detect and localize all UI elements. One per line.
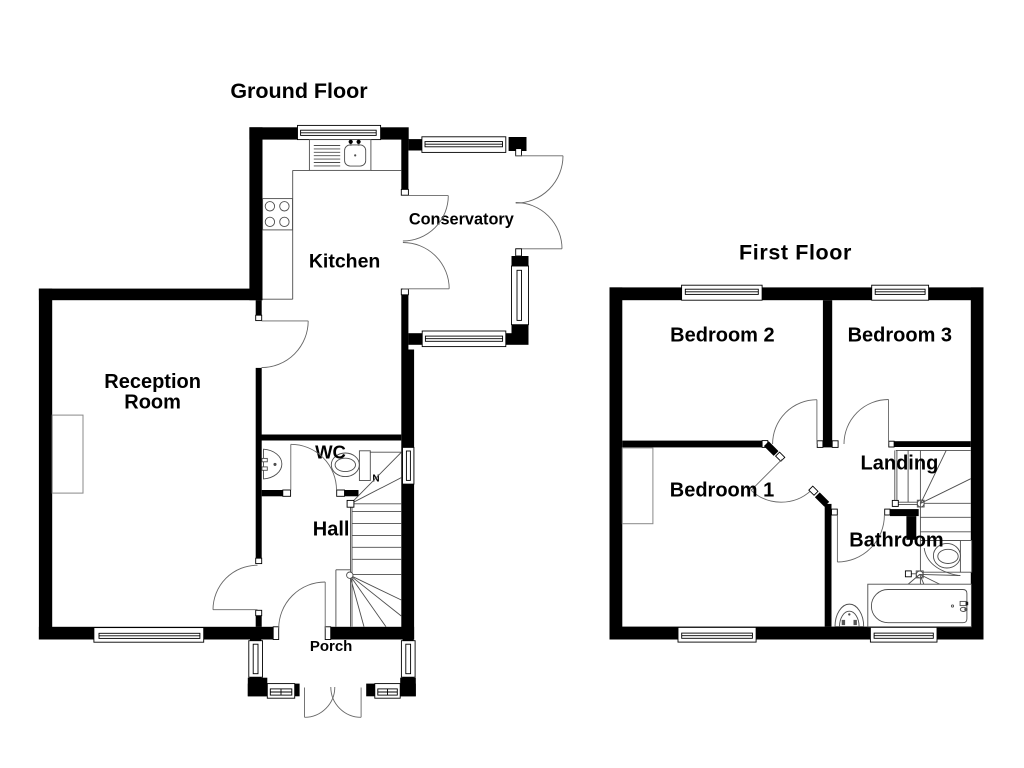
svg-text:Bedroom 1: Bedroom 1: [670, 479, 774, 501]
svg-text:Porch: Porch: [310, 638, 353, 655]
svg-text:First Floor: First Floor: [739, 241, 852, 265]
svg-text:Hall: Hall: [313, 518, 350, 540]
svg-text:Bedroom 2: Bedroom 2: [670, 325, 774, 347]
svg-text:Room: Room: [124, 392, 181, 414]
svg-text:Reception: Reception: [104, 371, 201, 393]
svg-text:Landing: Landing: [861, 453, 939, 475]
svg-text:Bathroom: Bathroom: [849, 530, 943, 552]
svg-text:Conservatory: Conservatory: [409, 210, 514, 228]
svg-text:WC: WC: [315, 442, 346, 463]
svg-text:Kitchen: Kitchen: [309, 250, 381, 272]
svg-text:Ground Floor: Ground Floor: [230, 79, 368, 103]
svg-text:Bedroom 3: Bedroom 3: [848, 325, 952, 347]
